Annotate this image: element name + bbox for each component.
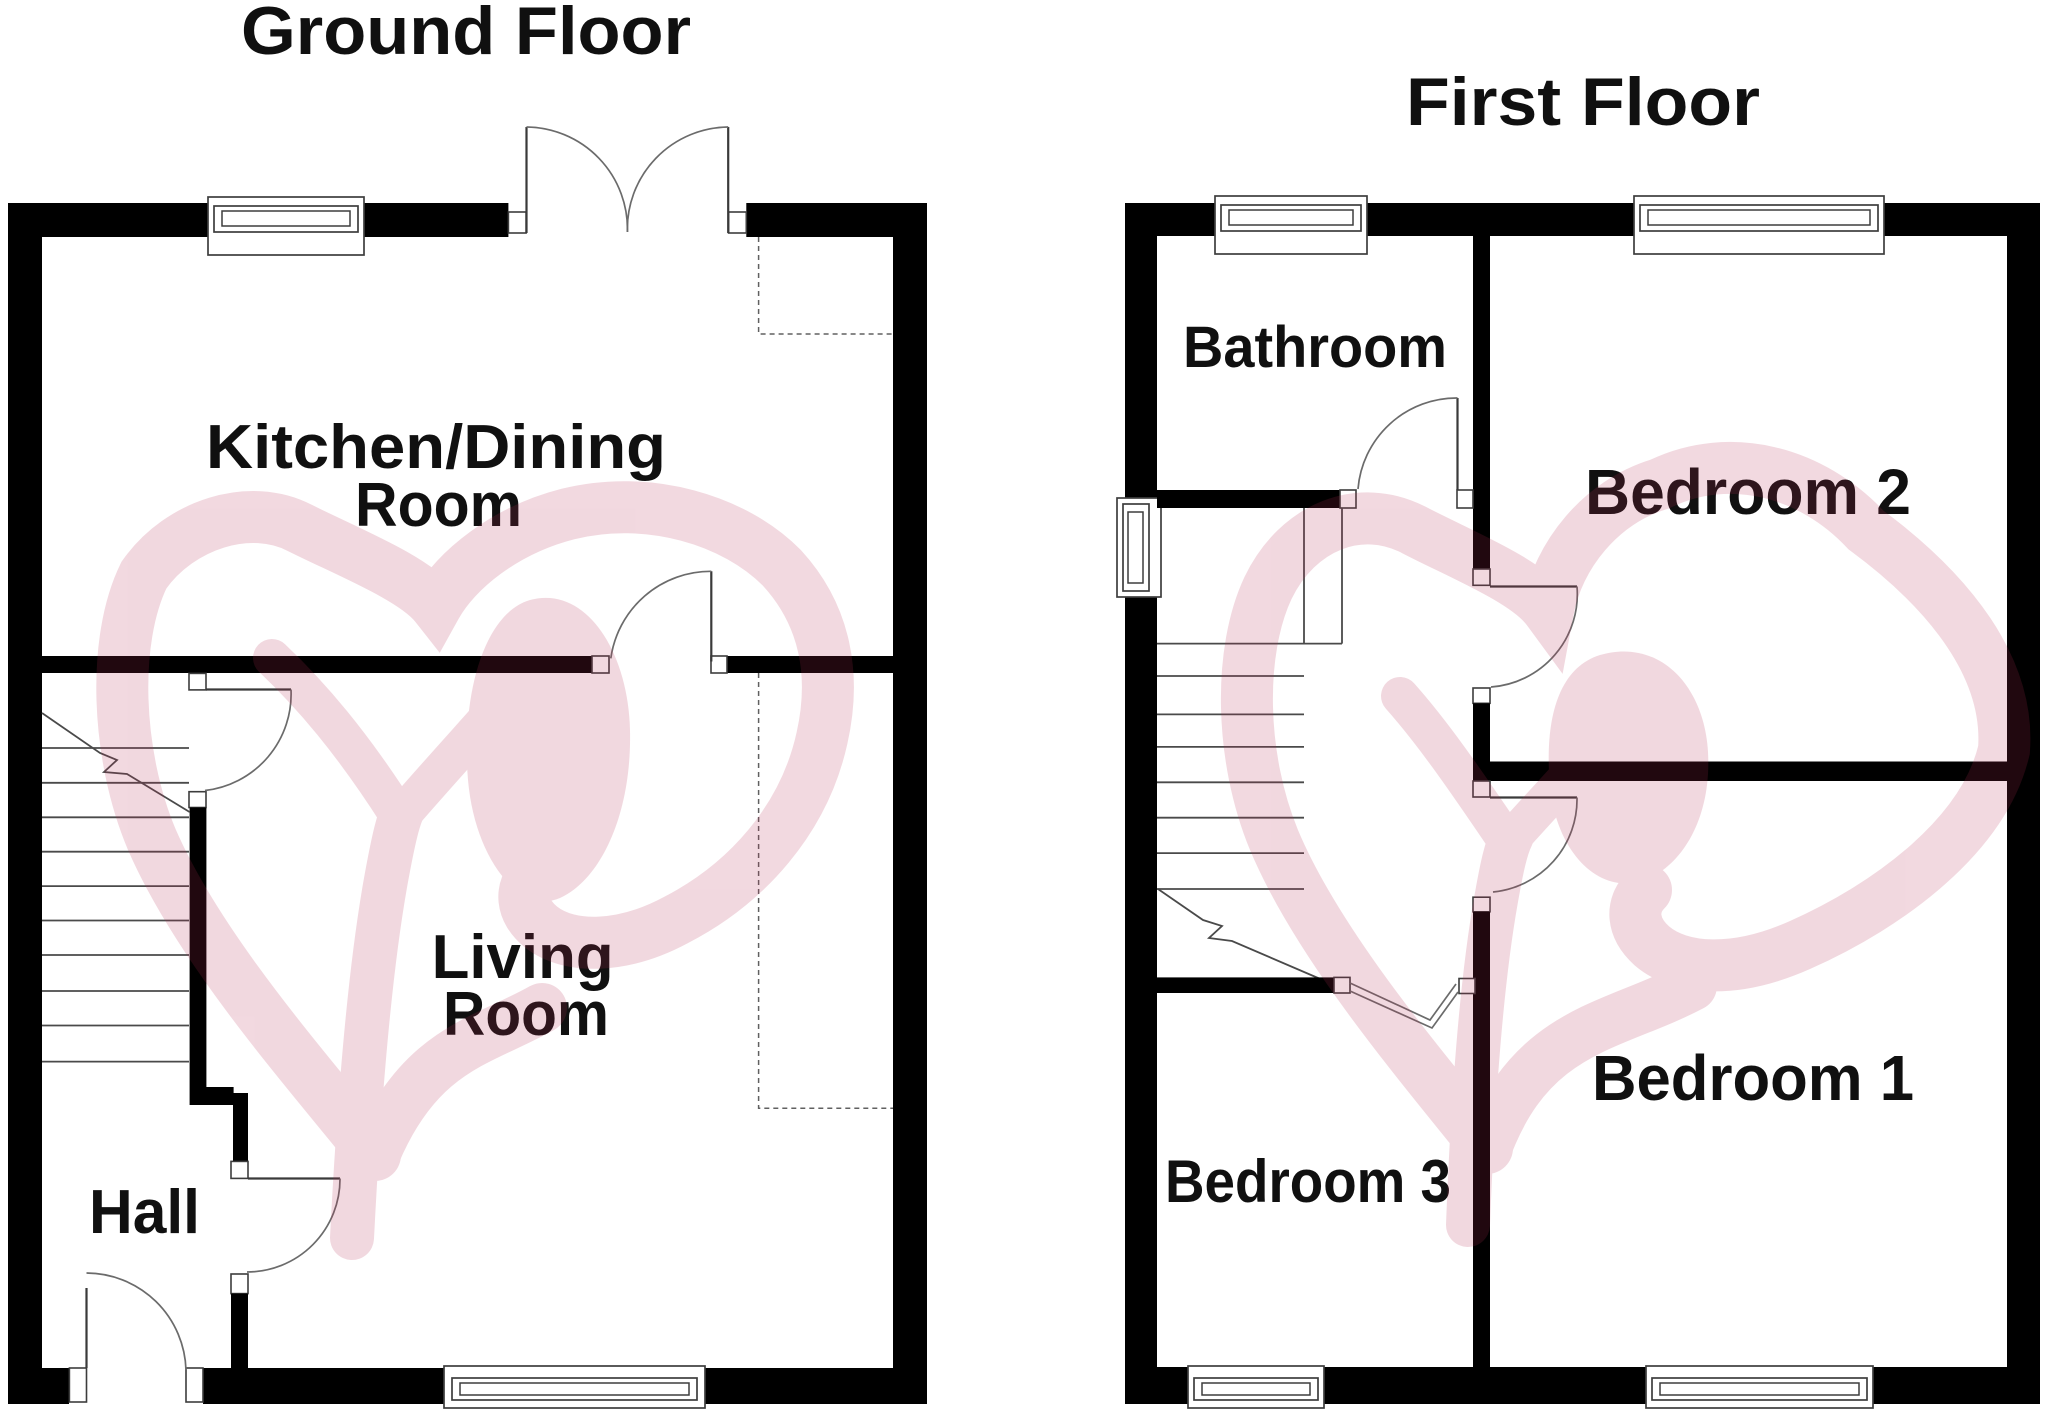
svg-text:First Floor: First Floor (1406, 64, 1760, 140)
svg-text:Bathroom: Bathroom (1183, 315, 1447, 380)
svg-text:Bedroom 3: Bedroom 3 (1165, 1148, 1451, 1215)
svg-text:Ground Floor: Ground Floor (241, 0, 691, 69)
svg-text:Hall: Hall (89, 1178, 200, 1247)
svg-text:Bedroom 1: Bedroom 1 (1592, 1042, 1914, 1114)
